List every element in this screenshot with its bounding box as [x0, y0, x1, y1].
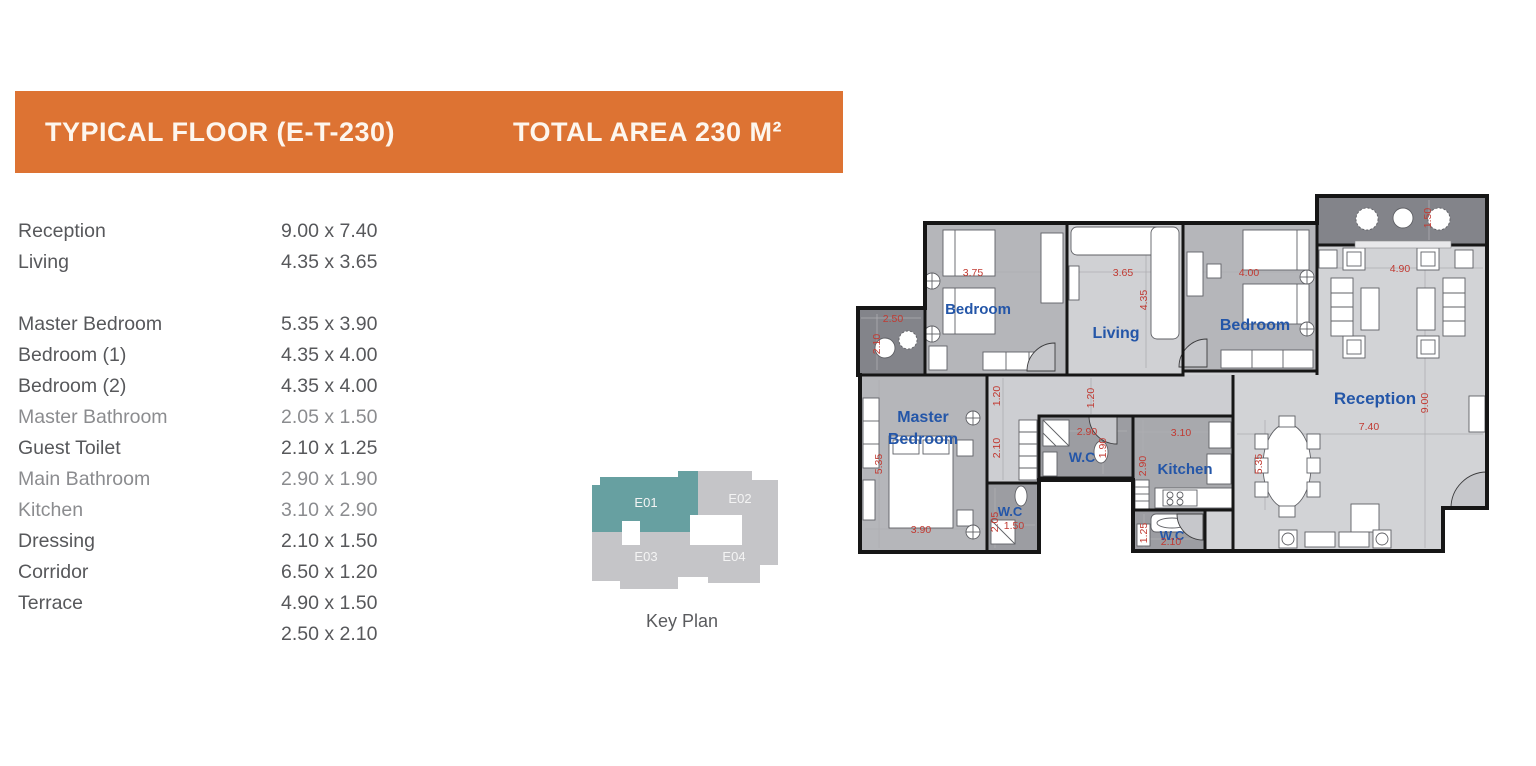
room-label: Master Bedroom: [18, 313, 162, 335]
side-table: [1279, 530, 1297, 548]
room-dims: 4.35 x 4.00: [281, 371, 378, 402]
side-table: [1373, 530, 1391, 548]
bench: [1339, 532, 1369, 547]
wardrobe: [1221, 350, 1313, 368]
key-plan-svg: E01 E02 E03 E04: [582, 465, 794, 610]
dim-corridor-1: 1.20: [991, 386, 1003, 407]
room-row-terrace: Terrace4.90 x 1.50: [18, 588, 438, 619]
dim-wc-main-width: 2.90: [1077, 426, 1098, 438]
plant: [899, 331, 917, 349]
dim-terrace-height: 1.50: [1422, 208, 1434, 229]
dim-terrace-left-width: 2.50: [883, 313, 904, 325]
key-plan-unit-e04-label: E04: [722, 549, 745, 564]
bed: [1243, 230, 1309, 270]
shower: [1043, 420, 1069, 446]
console: [1469, 396, 1485, 432]
room-dims: 3.10 x 2.90: [281, 495, 378, 526]
room-dims: 2.90 x 1.90: [281, 464, 378, 495]
key-plan-unit-e01-label: E01: [634, 495, 657, 510]
room-row-kitchen: Kitchen3.10 x 2.90: [18, 495, 438, 526]
room-label: Bedroom (2): [18, 375, 126, 397]
list-gap: [18, 278, 438, 309]
coffee-table: [1417, 288, 1435, 330]
dim-living-height: 4.35: [1138, 290, 1150, 311]
wardrobe: [1041, 233, 1063, 303]
room-label: Living: [18, 251, 69, 273]
sliding-door: [1355, 241, 1451, 248]
room-label: Terrace: [18, 592, 83, 614]
room-row-extra: 2.50 x 2.10: [18, 619, 438, 650]
terrace-table: [1393, 208, 1413, 228]
dim-kitchen-width: 3.10: [1171, 427, 1192, 439]
washbasin: [1015, 486, 1027, 506]
label-living: Living: [1092, 325, 1139, 342]
room-row-reception: Reception9.00 x 7.40: [18, 216, 438, 247]
chair: [1207, 264, 1221, 278]
side-table: [1319, 250, 1337, 268]
label-bedroom-2: Bedroom: [1220, 317, 1290, 334]
kitchen-counter: [1155, 488, 1233, 508]
page-title: TYPICAL FLOOR (E-T-230): [45, 91, 395, 173]
nightstand: [957, 440, 973, 456]
dim-living-width: 3.65: [1113, 267, 1134, 279]
key-plan-core-cutout: [690, 515, 742, 545]
key-plan-unit-e03-label: E03: [634, 549, 657, 564]
total-area-label: TOTAL AREA 230 M²: [513, 91, 782, 173]
room-dims: 4.90 x 1.50: [281, 588, 378, 619]
dim-bedroom1-width: 3.75: [963, 267, 984, 279]
room-dims: 2.10 x 1.25: [281, 433, 378, 464]
room-row-bedroom-1: Bedroom (1)4.35 x 4.00: [18, 340, 438, 371]
bench: [1305, 532, 1335, 547]
cabinet: [1043, 452, 1057, 476]
room-label: Bedroom (1): [18, 344, 126, 366]
key-plan-unit-e03-e04-shape: [592, 522, 778, 589]
key-plan-unit-e02-label: E02: [728, 491, 751, 506]
drying-rack: [1135, 480, 1149, 510]
room-label: Corridor: [18, 561, 88, 583]
label-kitchen: Kitchen: [1157, 461, 1212, 478]
armchair: [1343, 336, 1365, 358]
room-row-living: Living4.35 x 3.65: [18, 247, 438, 278]
room-dims: 2.50 x 2.10: [281, 619, 378, 650]
dim-dining-height: 5.35: [1253, 454, 1265, 475]
label-wc-master: W.C: [998, 504, 1023, 519]
dim-bedroom2-width: 4.00: [1239, 267, 1260, 279]
header-band: TYPICAL FLOOR (E-T-230) TOTAL AREA 230 M…: [15, 91, 843, 173]
tv-unit: [1069, 266, 1079, 300]
nightstand: [957, 510, 973, 526]
dim-wc-master-width: 1.50: [1004, 520, 1025, 532]
armchair: [1417, 248, 1439, 270]
room-row-main-bathroom: Main Bathroom2.90 x 1.90: [18, 464, 438, 495]
room-dims: 4.35 x 4.00: [281, 340, 378, 371]
armchair: [1417, 336, 1439, 358]
sofa: [1331, 278, 1353, 336]
room-row-corridor: Corridor6.50 x 1.20: [18, 557, 438, 588]
cabinet: [929, 346, 947, 370]
sofa: [1443, 278, 1465, 336]
room-label: Master Bathroom: [18, 406, 168, 428]
room-row-dressing: Dressing2.10 x 1.50: [18, 526, 438, 557]
room-dims: 4.35 x 3.65: [281, 247, 378, 278]
room-dims: 5.35 x 3.90: [281, 309, 378, 340]
room-dimension-list: Reception9.00 x 7.40 Living4.35 x 3.65 M…: [18, 216, 438, 650]
room-label: Dressing: [18, 530, 95, 552]
key-plan: E01 E02 E03 E04 Key Plan: [582, 465, 794, 640]
dressing-shelves: [1019, 420, 1037, 480]
room-row-master-bedroom: Master Bedroom5.35 x 3.90: [18, 309, 438, 340]
dim-wc-guest-height: 1.25: [1138, 523, 1150, 544]
fridge: [1209, 422, 1231, 448]
armchair: [1343, 248, 1365, 270]
label-wc-main: W.C: [1069, 449, 1095, 465]
dim-wc-master-height: 2.05: [989, 512, 1001, 533]
room-dims: 2.05 x 1.50: [281, 402, 378, 433]
dim-terrace-width: 4.90: [1390, 263, 1411, 275]
dim-corridor-3: 2.10: [991, 438, 1003, 459]
plant: [1356, 208, 1378, 230]
dim-master-height: 5.35: [873, 454, 885, 475]
floor-plan-svg: Bedroom Living Bedroom Reception Master …: [855, 188, 1495, 568]
room-dims: 2.10 x 1.50: [281, 526, 378, 557]
label-bedroom-1: Bedroom: [945, 301, 1011, 318]
dim-reception-height: 9.00: [1419, 393, 1431, 414]
dim-wc-main-height: 1.90: [1097, 438, 1109, 459]
label-master-line1: Master: [897, 409, 949, 426]
room-label: Guest Toilet: [18, 437, 121, 459]
side-table: [1455, 250, 1473, 268]
room-row-guest-toilet: Guest Toilet2.10 x 1.25: [18, 433, 438, 464]
room-row-master-bathroom: Master Bathroom2.05 x 1.50: [18, 402, 438, 433]
room-row-bedroom-2: Bedroom (2)4.35 x 4.00: [18, 371, 438, 402]
coffee-table: [1361, 288, 1379, 330]
room-label: Reception: [18, 220, 106, 242]
key-plan-core-cutout: [622, 521, 640, 545]
sofa: [1151, 227, 1179, 339]
dim-master-width: 3.90: [911, 524, 932, 536]
label-reception: Reception: [1334, 389, 1416, 408]
room-label: Kitchen: [18, 499, 83, 521]
room-label: Main Bathroom: [18, 468, 150, 490]
room-dims: 9.00 x 7.40: [281, 216, 378, 247]
tv-unit: [863, 480, 875, 520]
bed: [889, 436, 953, 528]
room-dims: 6.50 x 1.20: [281, 557, 378, 588]
dim-wc-guest-width: 2.10: [1161, 536, 1182, 548]
dim-corridor-2: 1.20: [1085, 388, 1097, 409]
label-master-line2: Bedroom: [888, 431, 958, 448]
dim-reception-width: 7.40: [1359, 421, 1380, 433]
dim-kitchen-height: 2.90: [1137, 456, 1149, 477]
tv-table: [1351, 504, 1379, 532]
dim-terrace-left-height: 2.10: [871, 334, 883, 355]
key-plan-caption: Key Plan: [582, 611, 782, 632]
floor-plan: Bedroom Living Bedroom Reception Master …: [855, 188, 1495, 568]
desk: [1187, 252, 1203, 296]
